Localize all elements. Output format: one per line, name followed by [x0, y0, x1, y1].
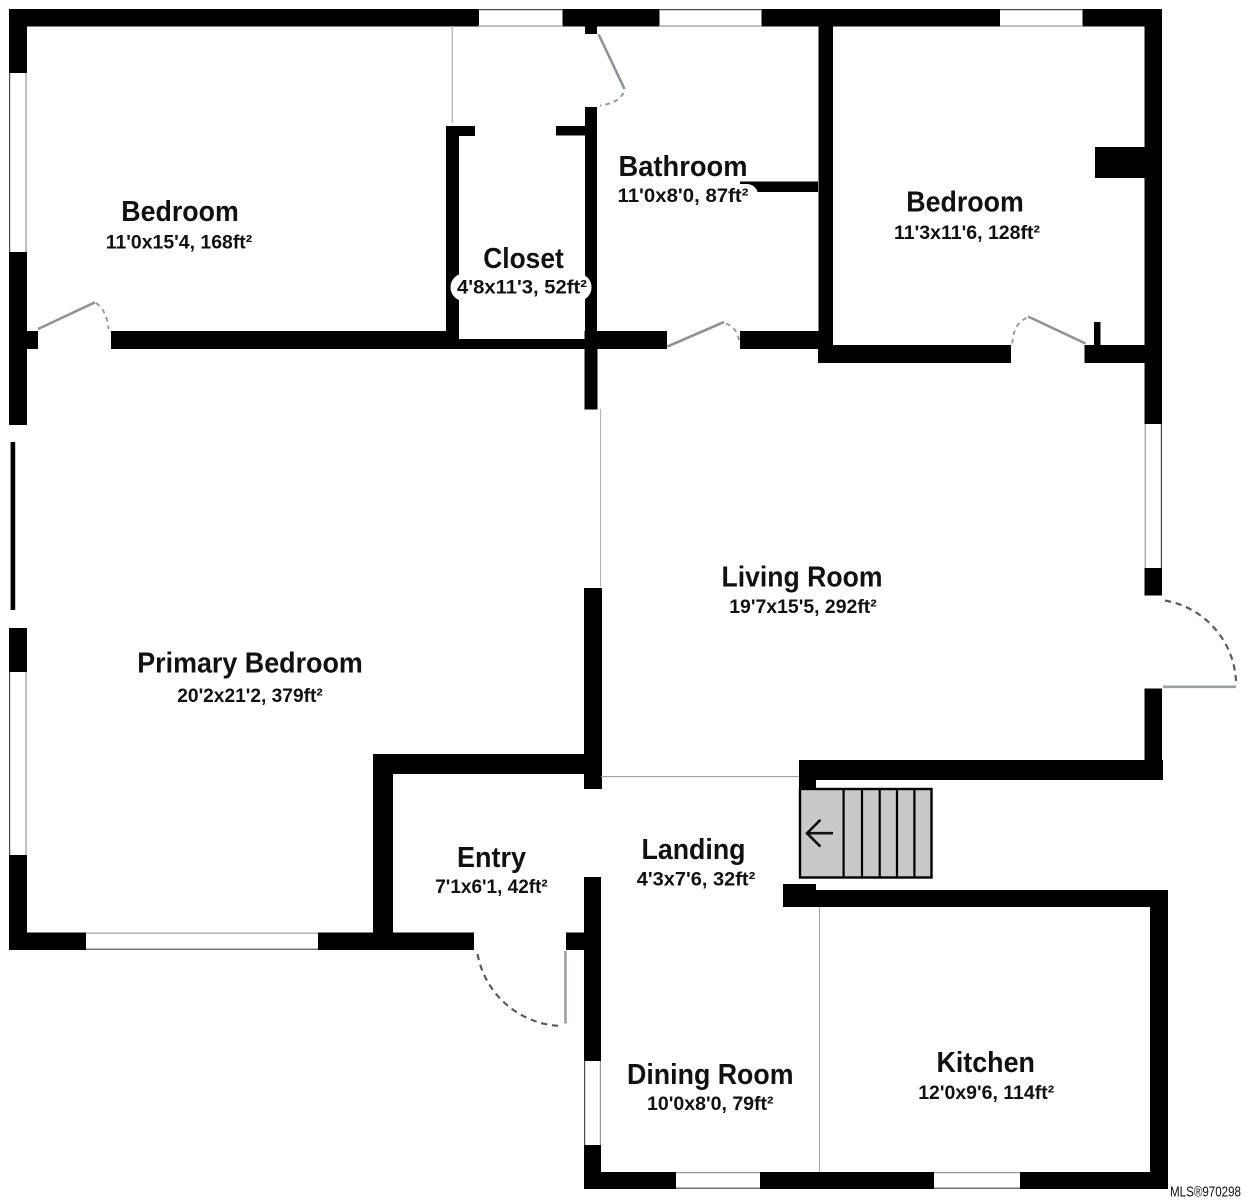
svg-text:11'0x15'4, 168ft²: 11'0x15'4, 168ft² [106, 232, 253, 254]
svg-text:Living Room: Living Room [722, 562, 883, 594]
svg-text:Bathroom: Bathroom [619, 151, 748, 183]
svg-text:Dining Room: Dining Room [627, 1059, 794, 1091]
svg-text:20'2x21'2, 379ft²: 20'2x21'2, 379ft² [177, 685, 323, 707]
svg-text:Landing: Landing [642, 834, 746, 866]
svg-text:Primary Bedroom: Primary Bedroom [137, 648, 363, 680]
svg-text:Closet: Closet [483, 243, 564, 275]
svg-text:Entry: Entry [457, 842, 526, 874]
svg-text:4'3x7'6, 32ft²: 4'3x7'6, 32ft² [637, 869, 756, 891]
svg-text:Bedroom: Bedroom [121, 196, 239, 228]
svg-text:MLS®970298: MLS®970298 [1170, 1184, 1241, 1200]
svg-text:11'0x8'0, 87ft²: 11'0x8'0, 87ft² [618, 185, 750, 207]
svg-text:11'3x11'6, 128ft²: 11'3x11'6, 128ft² [894, 222, 1041, 244]
svg-text:4'8x11'3, 52ft²: 4'8x11'3, 52ft² [457, 277, 588, 299]
svg-text:7'1x6'1, 42ft²: 7'1x6'1, 42ft² [435, 876, 548, 898]
svg-text:Bedroom: Bedroom [906, 187, 1024, 219]
svg-text:Kitchen: Kitchen [936, 1047, 1035, 1079]
svg-text:10'0x8'0, 79ft²: 10'0x8'0, 79ft² [647, 1093, 774, 1115]
svg-text:12'0x9'6, 114ft²: 12'0x9'6, 114ft² [918, 1082, 1055, 1104]
svg-text:19'7x15'5, 292ft²: 19'7x15'5, 292ft² [729, 596, 877, 618]
